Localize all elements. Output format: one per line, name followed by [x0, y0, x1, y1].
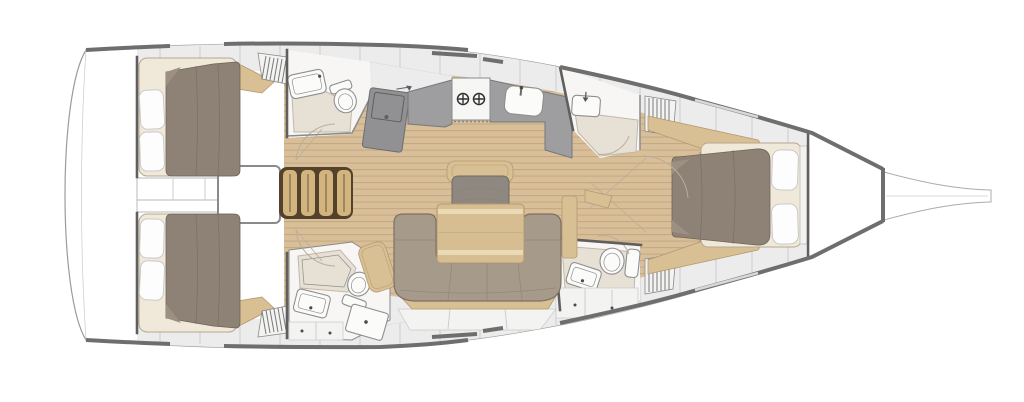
salon-table — [437, 204, 524, 263]
chair — [447, 161, 513, 210]
vanity-drawers — [289, 322, 343, 340]
interior — [137, 30, 809, 360]
under-settee-lockers — [398, 309, 556, 330]
bed-duvet — [166, 62, 240, 176]
pillow — [139, 219, 164, 259]
louver-locker — [258, 53, 287, 84]
yacht-floorplan-page — [0, 0, 1024, 402]
bed-duvet — [166, 214, 240, 328]
galley-sink — [504, 85, 545, 117]
corridor-cabinets — [137, 178, 218, 212]
pillow — [139, 132, 164, 172]
pillow — [139, 260, 165, 300]
pillow — [771, 204, 798, 245]
companionway-steps — [279, 167, 353, 219]
burner — [474, 94, 485, 105]
pillow — [771, 150, 798, 191]
bed-duvet — [672, 149, 770, 245]
burner — [458, 94, 469, 105]
yacht-floorplan-svg — [0, 0, 1024, 402]
sideboard — [562, 196, 577, 258]
pillow — [139, 89, 165, 129]
louver-locker — [258, 306, 287, 337]
